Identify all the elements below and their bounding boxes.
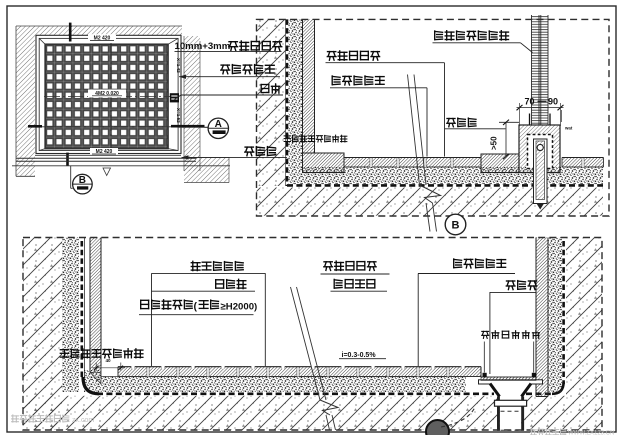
svg-text:A: A (215, 119, 222, 130)
svg-text:zx.com: zx.com (72, 417, 94, 424)
svg-text:70: 70 (525, 97, 535, 107)
svg-text:B: B (452, 220, 460, 232)
svg-text:90: 90 (548, 97, 558, 107)
svg-text:40: 40 (105, 358, 111, 363)
svg-text:WWW.ZX123.CN: WWW.ZX123.CN (568, 431, 614, 436)
svg-text:X=1.52: X=1.52 (176, 108, 181, 123)
svg-text:>50: >50 (490, 136, 499, 150)
svg-text:wat: wat (564, 126, 573, 131)
svg-text:10mm+3mm: 10mm+3mm (175, 41, 231, 52)
svg-text:B: B (79, 175, 86, 186)
svg-text:i=0.3-0.5%: i=0.3-0.5% (342, 352, 377, 359)
svg-text:≥H2000): ≥H2000) (221, 301, 258, 312)
svg-text:X=1.42: X=1.42 (176, 58, 181, 73)
svg-text:(: ( (194, 301, 198, 313)
